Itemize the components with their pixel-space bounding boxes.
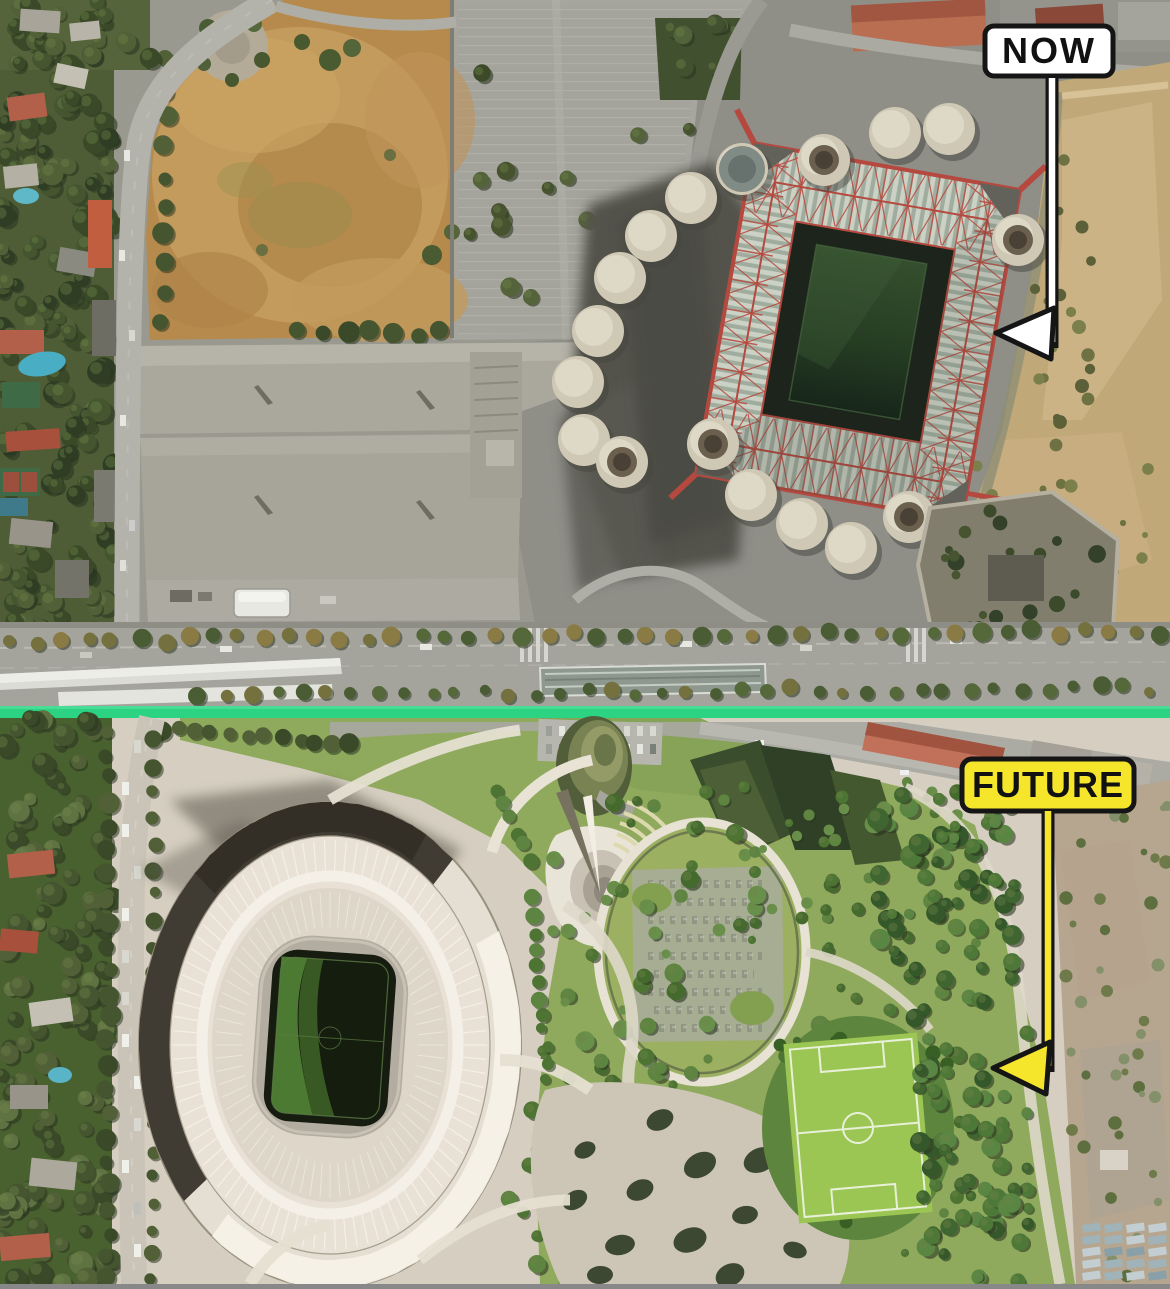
svg-text:FUTURE: FUTURE — [972, 764, 1124, 805]
svg-text:NOW: NOW — [1002, 30, 1096, 71]
